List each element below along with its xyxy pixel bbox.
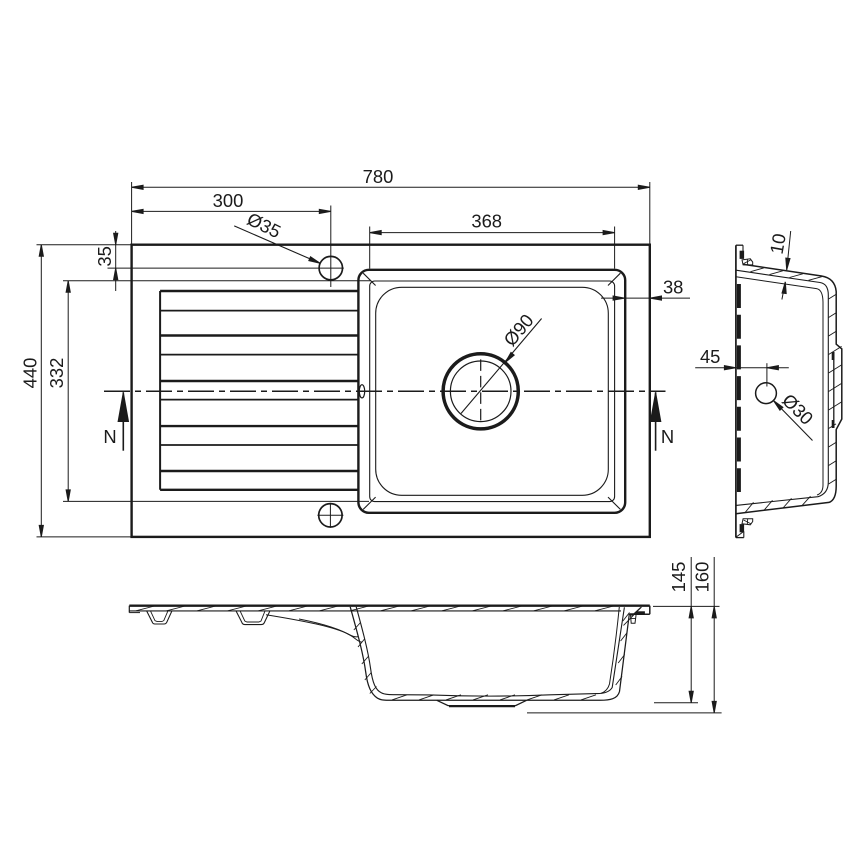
svg-text:N: N (661, 426, 674, 447)
svg-text:N: N (103, 426, 116, 447)
svg-text:332: 332 (46, 358, 67, 389)
svg-text:38: 38 (663, 276, 683, 297)
svg-text:Ø90: Ø90 (499, 310, 537, 350)
svg-text:35: 35 (94, 246, 115, 266)
svg-text:10: 10 (766, 232, 790, 256)
svg-text:145: 145 (668, 562, 689, 593)
svg-text:Ø35: Ø35 (244, 208, 284, 242)
svg-text:Ø30: Ø30 (778, 389, 817, 428)
svg-text:300: 300 (213, 190, 244, 211)
svg-text:45: 45 (700, 346, 720, 367)
svg-text:440: 440 (20, 358, 41, 389)
svg-text:368: 368 (471, 211, 502, 232)
svg-text:160: 160 (692, 562, 713, 593)
svg-text:780: 780 (363, 166, 394, 187)
